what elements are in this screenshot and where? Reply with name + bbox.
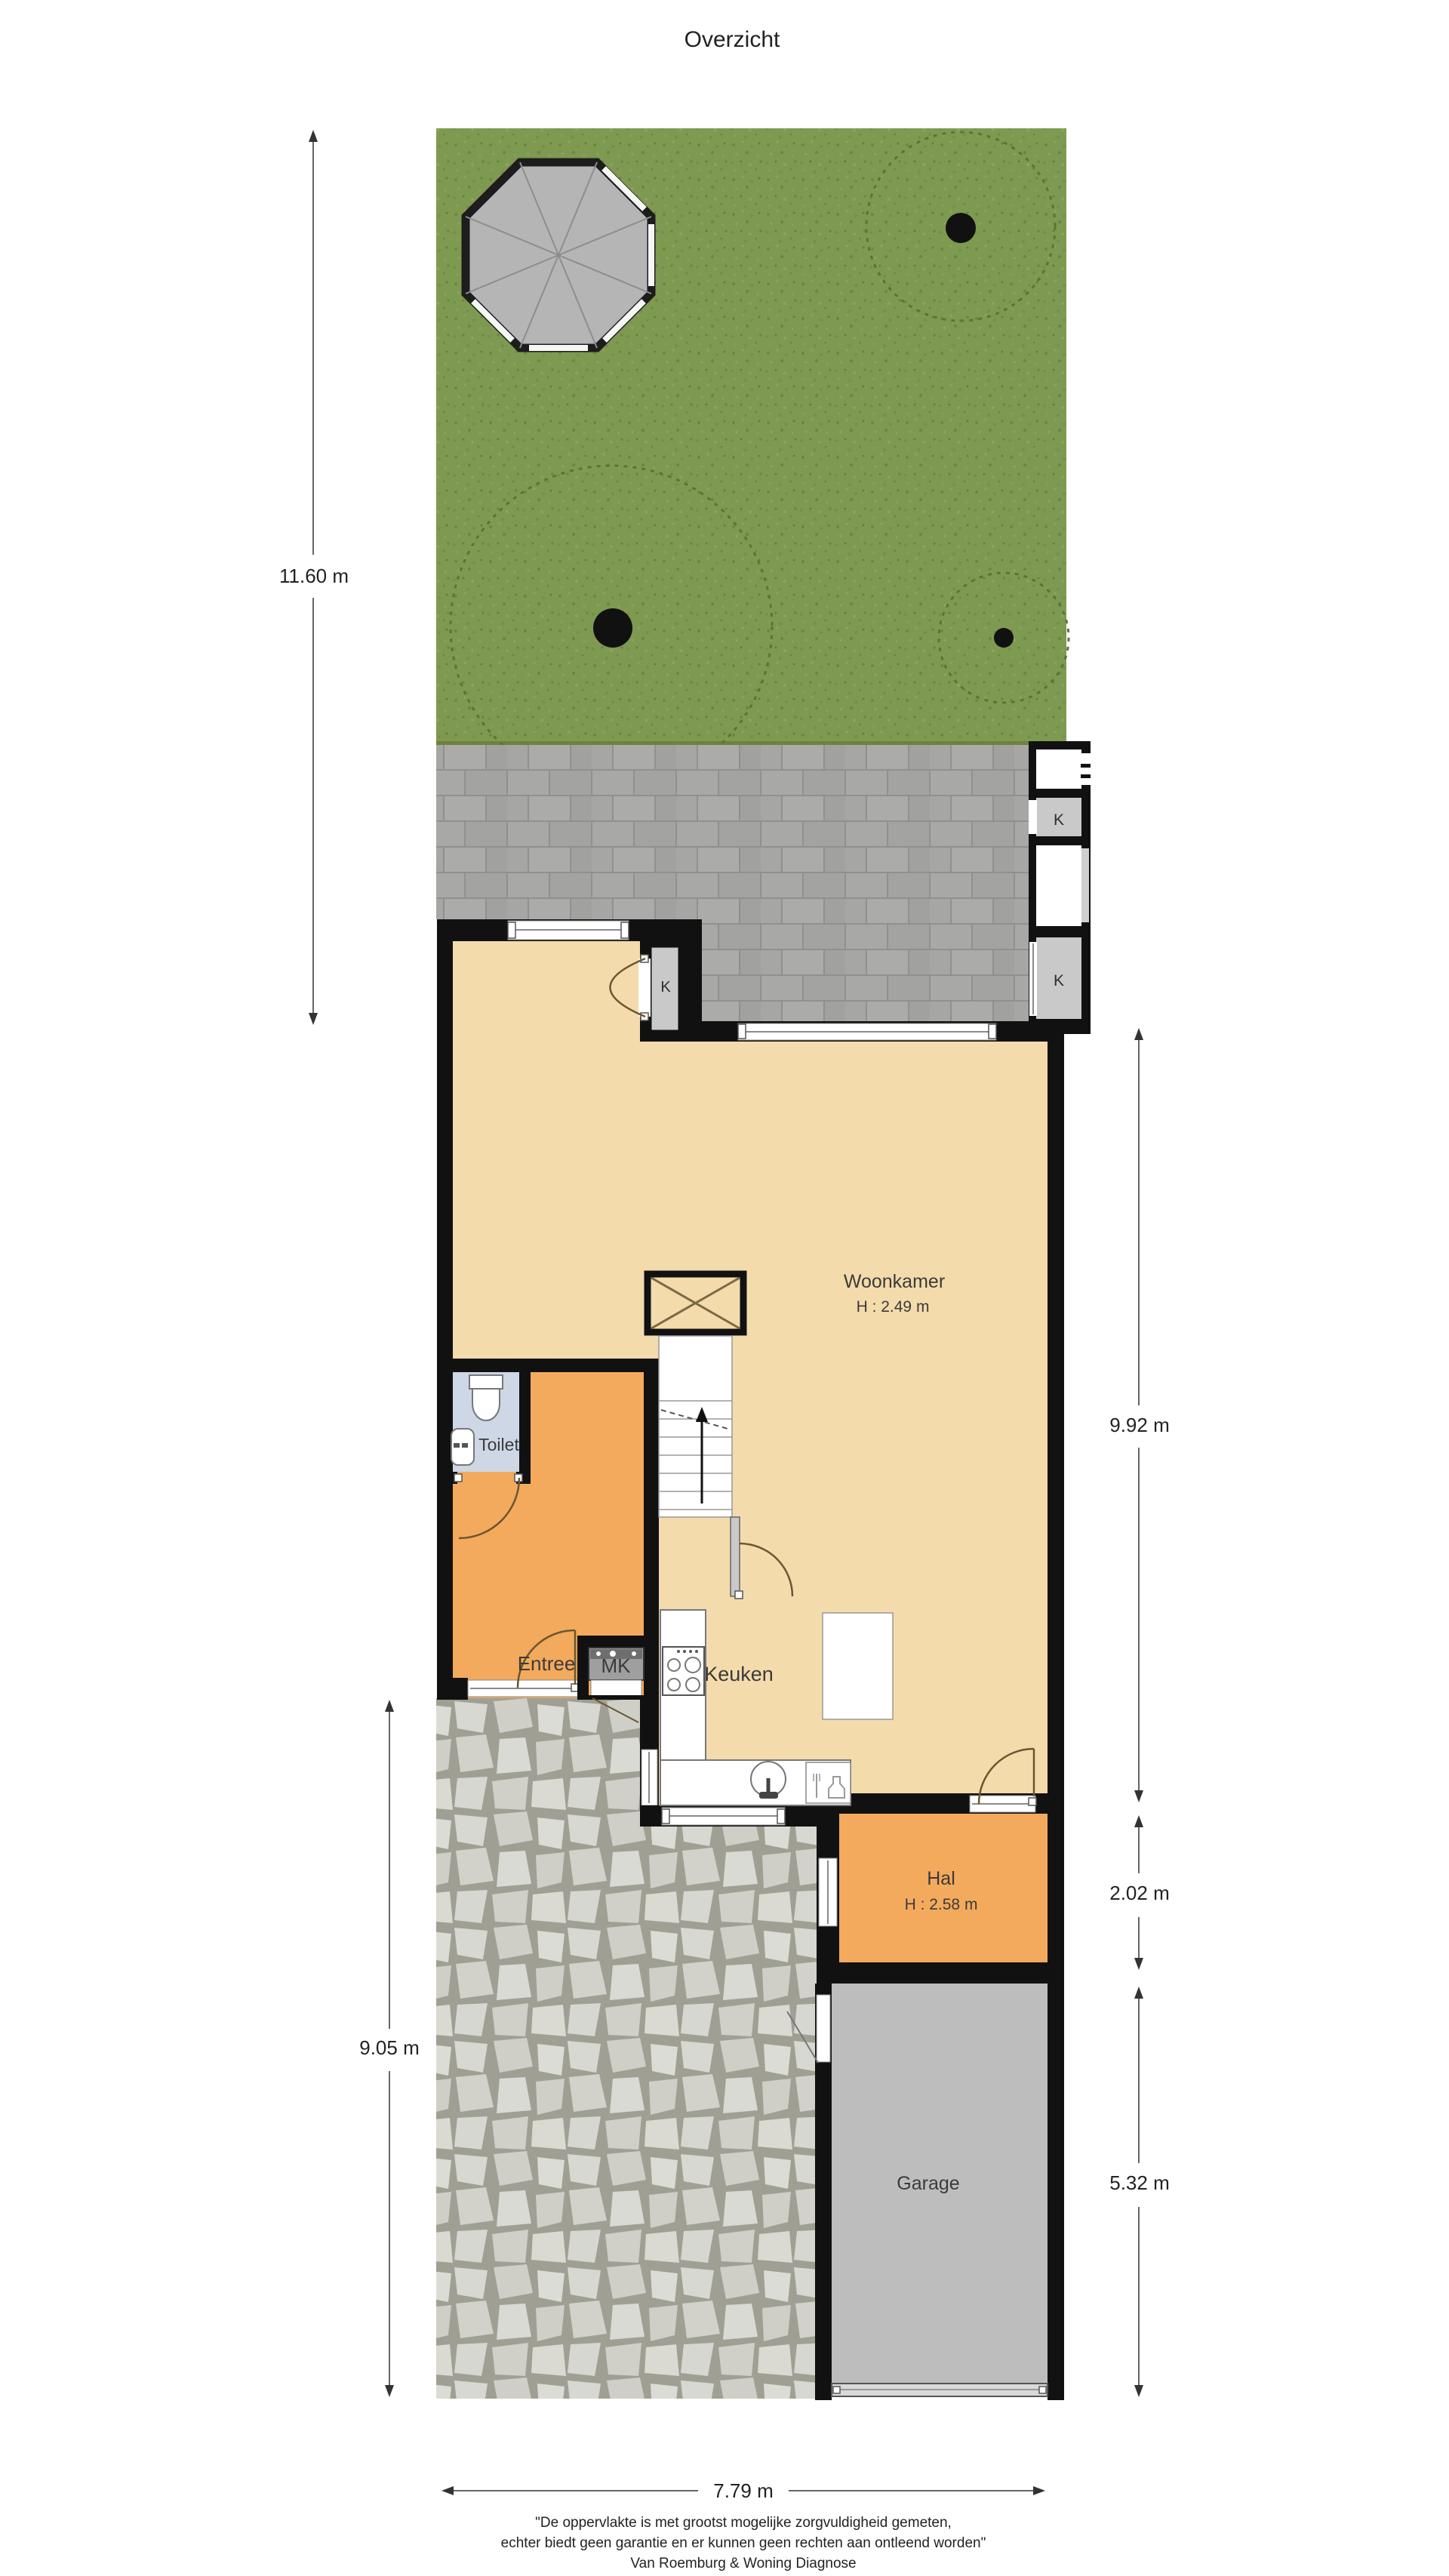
dimension-living-depth: 9.92 m xyxy=(1109,1028,1170,1802)
floor-plan-page: K K xyxy=(0,0,1449,2576)
gazebo xyxy=(466,162,651,348)
footer-disclaimer-line2: echter biedt geen garantie en er kunnen … xyxy=(501,2535,986,2551)
garden xyxy=(436,128,1069,787)
dim-plot-width-label: 7.79 m xyxy=(713,2479,774,2502)
hal-height: H : 2.58 m xyxy=(905,1896,978,1913)
woonkamer-label: Woonkamer xyxy=(844,1271,945,1292)
stair-wall-stub xyxy=(731,1517,740,1596)
kast-backdoor-label: K xyxy=(660,979,671,996)
shed-strip: K K xyxy=(1029,741,1091,1034)
hal-label: Hal xyxy=(927,1868,955,1889)
page-title: Overzicht xyxy=(685,27,780,52)
mk-door xyxy=(591,1680,641,1697)
garage-label: Garage xyxy=(897,2173,959,2194)
dim-front-depth-label: 9.05 m xyxy=(359,2036,420,2059)
dimension-front-depth: 9.05 m xyxy=(359,1700,420,2397)
shed-window xyxy=(1081,848,1089,922)
garage-side-door xyxy=(817,1995,830,2062)
mk-label: MK xyxy=(601,1654,632,1677)
dimension-garden-depth: 11.60 m xyxy=(279,130,349,1025)
woonkamer-height: H : 2.49 m xyxy=(857,1298,930,1316)
shed-window xyxy=(1029,800,1037,834)
dim-garage-depth-label: 5.32 m xyxy=(1109,2171,1170,2194)
shed-label-k2: K xyxy=(1054,972,1064,989)
entree-label: Entree xyxy=(518,1652,576,1675)
toilet-tank xyxy=(469,1375,503,1389)
shed-label-k1: K xyxy=(1054,811,1064,829)
toilet-label: Toilet xyxy=(478,1435,519,1454)
shed-window xyxy=(1081,753,1091,785)
footer-company: Van Roemburg & Woning Diagnose xyxy=(630,2556,856,2571)
hal-floor xyxy=(832,1811,1048,1971)
footer-disclaimer-line1: "De oppervlakte is met grootst mogelijke… xyxy=(535,2515,952,2531)
keuken-label: Keuken xyxy=(704,1663,774,1685)
floor-plan-drawing: K K xyxy=(0,0,1449,2576)
dimension-plot-width: 7.79 m xyxy=(441,2479,1045,2502)
kitchen-island xyxy=(823,1613,893,1719)
back-door xyxy=(638,959,651,1017)
dim-living-depth-label: 9.92 m xyxy=(1109,1414,1170,1436)
dimension-hal-depth: 2.02 m xyxy=(1109,1815,1170,1970)
toilet-bowl xyxy=(472,1389,500,1420)
dim-garden-depth-label: 11.60 m xyxy=(279,565,349,587)
dim-hal-depth-label: 2.02 m xyxy=(1109,1882,1170,1904)
dimension-garage-depth: 5.32 m xyxy=(1109,1987,1170,2397)
